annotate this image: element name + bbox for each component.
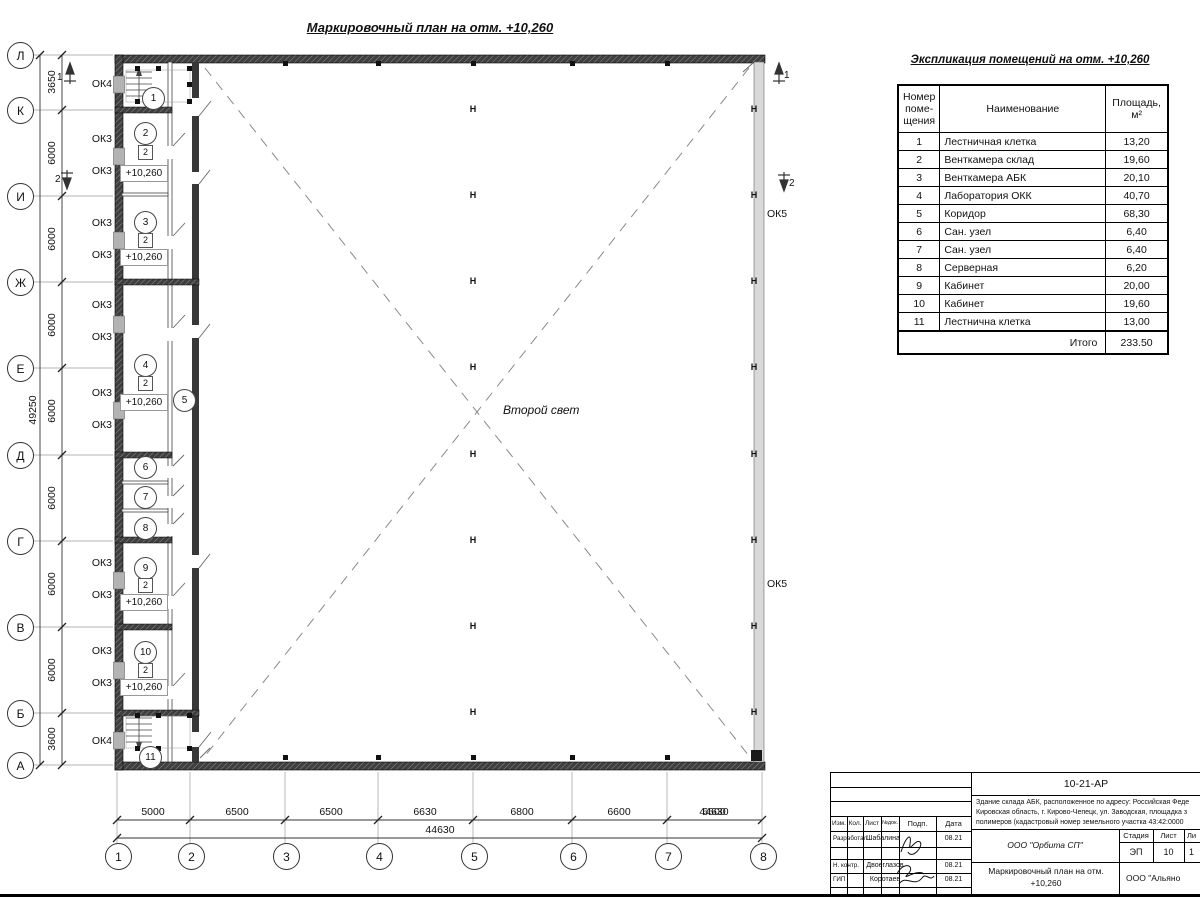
column-symbol: H — [465, 362, 481, 372]
dim-row-total: 49250 — [27, 390, 39, 430]
elevation-mark: +10,260 — [120, 249, 168, 266]
axis-row-I: И — [7, 183, 34, 210]
col-ndoc: №док. — [881, 816, 899, 831]
section-mark-1: 1 — [57, 72, 63, 83]
axis-col-3: 3 — [273, 843, 300, 870]
drawing-name: Маркировочный план на отм. +10,260 — [973, 865, 1119, 889]
hall-diagonals — [205, 68, 749, 756]
axis-row-Zh: Ж — [7, 269, 34, 296]
dim-row-1: 6000 — [46, 133, 58, 173]
designer-company: ООО "Орбита СП" — [971, 829, 1119, 862]
window-tag-ok3: ОК3 — [82, 249, 112, 261]
table-row: 2Венткамера склад19,60 — [898, 151, 1168, 169]
axis-row-D: Д — [7, 442, 34, 469]
window-tag-ok3: ОК3 — [82, 677, 112, 689]
name-ncontrol: Двоеглазов — [863, 859, 907, 873]
stair-bottom — [126, 716, 190, 751]
section-mark-2: 2 — [789, 178, 795, 189]
name-gip: Коротаев — [863, 873, 907, 887]
column-symbol: H — [746, 190, 762, 200]
table-row: 1Лестничная клетка13,20 — [898, 133, 1168, 151]
axis-row-V: В — [7, 614, 34, 641]
room-mark-5: 5 — [173, 389, 196, 412]
sheet-value: 10 — [1153, 842, 1184, 862]
axis-col-6: 6 — [560, 843, 587, 870]
axis-col-7: 7 — [655, 843, 682, 870]
table-row: 6Сан. узел6,40 — [898, 223, 1168, 241]
table-row: 4Лаборатория ОКК40,70 — [898, 187, 1168, 205]
date-ncontrol: 08.21 — [936, 859, 971, 873]
axis-row-E: Е — [7, 355, 34, 382]
stage-value: ЭП — [1119, 842, 1153, 862]
explication-title: Экспликация помещений на отм. +10,260 — [897, 54, 1163, 66]
window-tag-ok5: ОК5 — [767, 578, 797, 590]
col-data: Дата — [936, 816, 971, 831]
column-symbol: H — [746, 276, 762, 286]
room-mark-9: 9 — [134, 557, 157, 580]
col-header-number: Номер поме- щения — [898, 85, 940, 133]
name-developer: Шабалина — [863, 831, 903, 847]
window-tag-ok3: ОК3 — [82, 217, 112, 229]
sheet-label: Лист — [1153, 829, 1184, 842]
stage-label: Стадия — [1119, 829, 1153, 842]
elevation-mark: +10,260 — [120, 165, 168, 182]
window-band-ok5 — [754, 62, 764, 762]
room-mark-4: 4 — [134, 354, 157, 377]
window-tag-ok3: ОК3 — [82, 299, 112, 311]
window-tag-ok3: ОК3 — [82, 645, 112, 657]
dim-col-3: 6630 — [400, 806, 450, 818]
axis-col-8: 8 — [750, 843, 777, 870]
dim-col-4: 6800 — [497, 806, 547, 818]
window-tag-ok5: ОК5 — [767, 208, 797, 220]
floor-type-mark: 2 — [138, 578, 153, 593]
sheet-frame — [0, 894, 1200, 897]
column-markers — [135, 61, 670, 760]
dim-col-0: 5000 — [128, 806, 178, 818]
column-symbol: H — [746, 707, 762, 717]
column-symbol: H — [465, 535, 481, 545]
client-company: ООО "Альяно — [1126, 862, 1200, 895]
room-mark-2: 2 — [134, 122, 157, 145]
dim-col-5: 6600 — [594, 806, 644, 818]
elevation-mark: +10,260 — [120, 594, 168, 611]
window-tag-ok4: ОК4 — [82, 78, 112, 90]
table-row: 8Серверная6,20 — [898, 259, 1168, 277]
table-row: 10Кабинет19,60 — [898, 295, 1168, 313]
elevation-mark: +10,260 — [120, 394, 168, 411]
table-total-row: Итого 233.50 — [898, 331, 1168, 354]
column-symbol: H — [465, 276, 481, 286]
window-tag-ok3: ОК3 — [82, 387, 112, 399]
date-developer: 08.21 — [936, 831, 971, 847]
axis-row-G: Г — [7, 528, 34, 555]
column-symbol: H — [746, 535, 762, 545]
sheets-label: Ли — [1187, 829, 1200, 842]
dim-row-2: 6000 — [46, 219, 58, 259]
dim-row-6: 6000 — [46, 564, 58, 604]
window-tag-ok3: ОК3 — [82, 133, 112, 145]
dim-col-total: 44630 — [410, 824, 470, 836]
column-symbol: H — [746, 449, 762, 459]
hall-label: Второй свет — [503, 403, 579, 417]
table-row: 11Лестнична клетка13,00 — [898, 313, 1168, 332]
explication-table: Номер поме- щения Наименование Площадь, … — [897, 84, 1169, 355]
floor-type-mark: 2 — [138, 233, 153, 248]
window-tag-ok3: ОК3 — [82, 165, 112, 177]
window-tag-ok3: ОК3 — [82, 331, 112, 343]
exterior-walls — [115, 55, 765, 770]
room-mark-10: 10 — [134, 641, 157, 664]
title-block: 10-21-АР Здание склада АБК, расположенно… — [830, 772, 1200, 895]
window-tag-ok3: ОК3 — [82, 557, 112, 569]
section-mark-1: 1 — [784, 70, 790, 81]
axis-row-L: Л — [7, 42, 34, 69]
date-gip: 08.21 — [936, 873, 971, 887]
dim-col-2: 6500 — [306, 806, 356, 818]
column-symbol: H — [465, 104, 481, 114]
col-kol: Кол. — [847, 816, 863, 831]
door-leaves — [173, 63, 753, 758]
dim-col-6b: 6600 — [689, 806, 739, 818]
table-row: 5Коридор68,30 — [898, 205, 1168, 223]
dim-row-5: 6000 — [46, 478, 58, 518]
column-symbol: H — [746, 362, 762, 372]
table-row: 3Венткамера АБК20,10 — [898, 169, 1168, 187]
elevation-mark: +10,260 — [120, 679, 168, 696]
column-symbol: H — [465, 707, 481, 717]
axis-col-4: 4 — [366, 843, 393, 870]
column-symbol: H — [465, 621, 481, 631]
dim-row-8: 3600 — [46, 719, 58, 759]
axis-row-B: Б — [7, 700, 34, 727]
window-tag-ok4: ОК4 — [82, 735, 112, 747]
room-mark-11: 11 — [139, 746, 162, 769]
room-mark-8: 8 — [134, 517, 157, 540]
section-mark-2: 2 — [55, 174, 61, 185]
table-row: 9Кабинет20,00 — [898, 277, 1168, 295]
floor-type-mark: 2 — [138, 663, 153, 678]
table-row: 7Сан. узел6,40 — [898, 241, 1168, 259]
column-symbol: H — [465, 449, 481, 459]
doc-number: 10-21-АР — [971, 773, 1200, 795]
column-symbol: H — [746, 104, 762, 114]
dim-row-3: 6000 — [46, 305, 58, 345]
column-symbol: H — [465, 190, 481, 200]
window-tag-ok3: ОК3 — [82, 589, 112, 601]
col-header-name: Наименование — [940, 85, 1106, 133]
room-mark-7: 7 — [134, 486, 157, 509]
axis-col-2: 2 — [178, 843, 205, 870]
dim-row-7: 6000 — [46, 650, 58, 690]
axis-col-1: 1 — [105, 843, 132, 870]
total-label: Итого — [898, 331, 1106, 354]
room-mark-1: 1 — [142, 87, 165, 110]
room-mark-6: 6 — [134, 456, 157, 479]
sheets-value: 1 — [1189, 842, 1200, 862]
total-value: 233.50 — [1106, 331, 1168, 354]
project-address: Здание склада АБК, расположенное по адре… — [976, 798, 1189, 828]
col-list: Лист — [863, 816, 881, 831]
dim-col-1: 6500 — [212, 806, 262, 818]
axis-row-K: К — [7, 97, 34, 124]
col-podp: Подп. — [899, 816, 936, 831]
axis-col-5: 5 — [461, 843, 488, 870]
room-mark-3: 3 — [134, 211, 157, 234]
axis-row-A: А — [7, 752, 34, 779]
floor-type-mark: 2 — [138, 376, 153, 391]
col-izm: Изм. — [831, 816, 847, 831]
window-tag-ok3: ОК3 — [82, 419, 112, 431]
col-header-area: Площадь, м² — [1106, 85, 1168, 133]
dim-row-4: 6000 — [46, 391, 58, 431]
floor-type-mark: 2 — [138, 145, 153, 160]
column-symbol: H — [746, 621, 762, 631]
plan-title: Маркировочный план на отм. +10,260 — [230, 20, 630, 35]
